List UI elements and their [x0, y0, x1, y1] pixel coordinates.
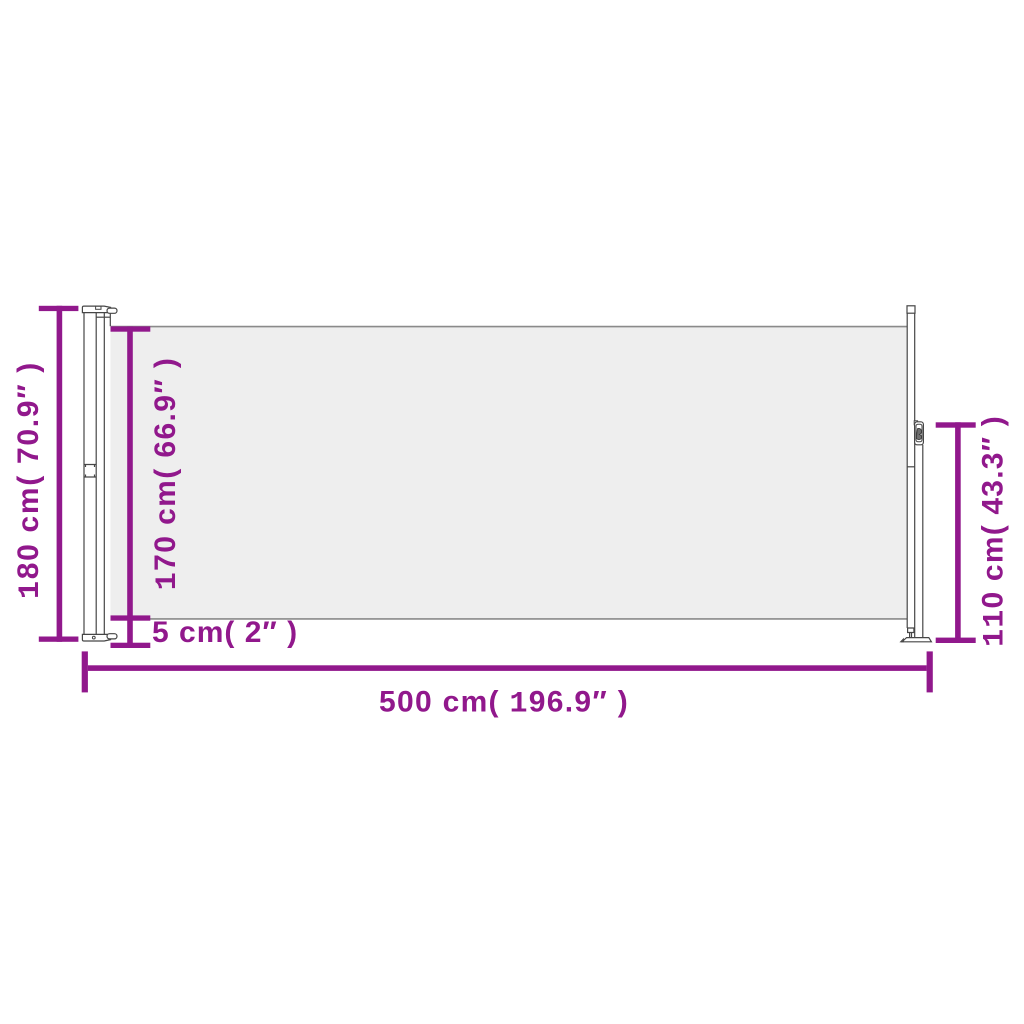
svg-text:500 cm( 196.9″ ): 500 cm( 196.9″ ): [379, 686, 629, 722]
svg-text:5 cm( 2″ ): 5 cm( 2″ ): [152, 616, 298, 649]
svg-text:180 cm( 70.9″ ): 180 cm( 70.9″ ): [12, 361, 48, 599]
svg-text:170 cm( 66.9″ ): 170 cm( 66.9″ ): [149, 357, 185, 590]
svg-text:110 cm( 43.3″ ): 110 cm( 43.3″ ): [977, 415, 1013, 647]
